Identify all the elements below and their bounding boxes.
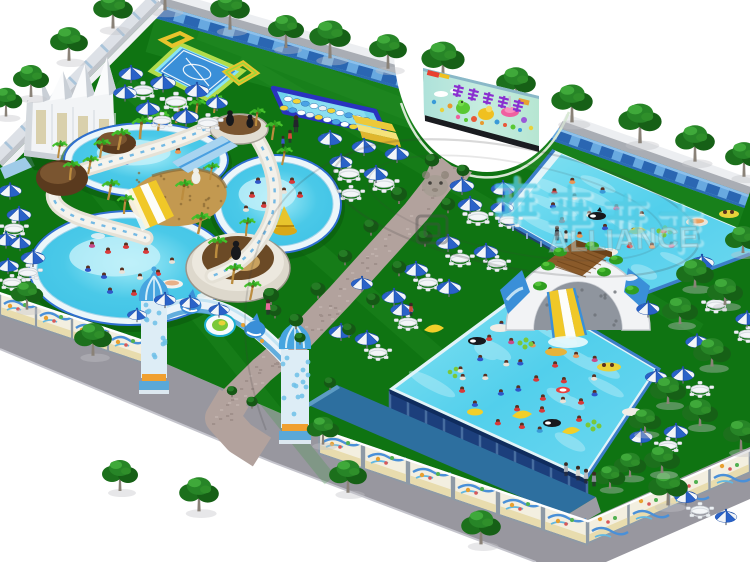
svg-text:ALLIANCE: ALLIANCE bbox=[548, 222, 700, 259]
